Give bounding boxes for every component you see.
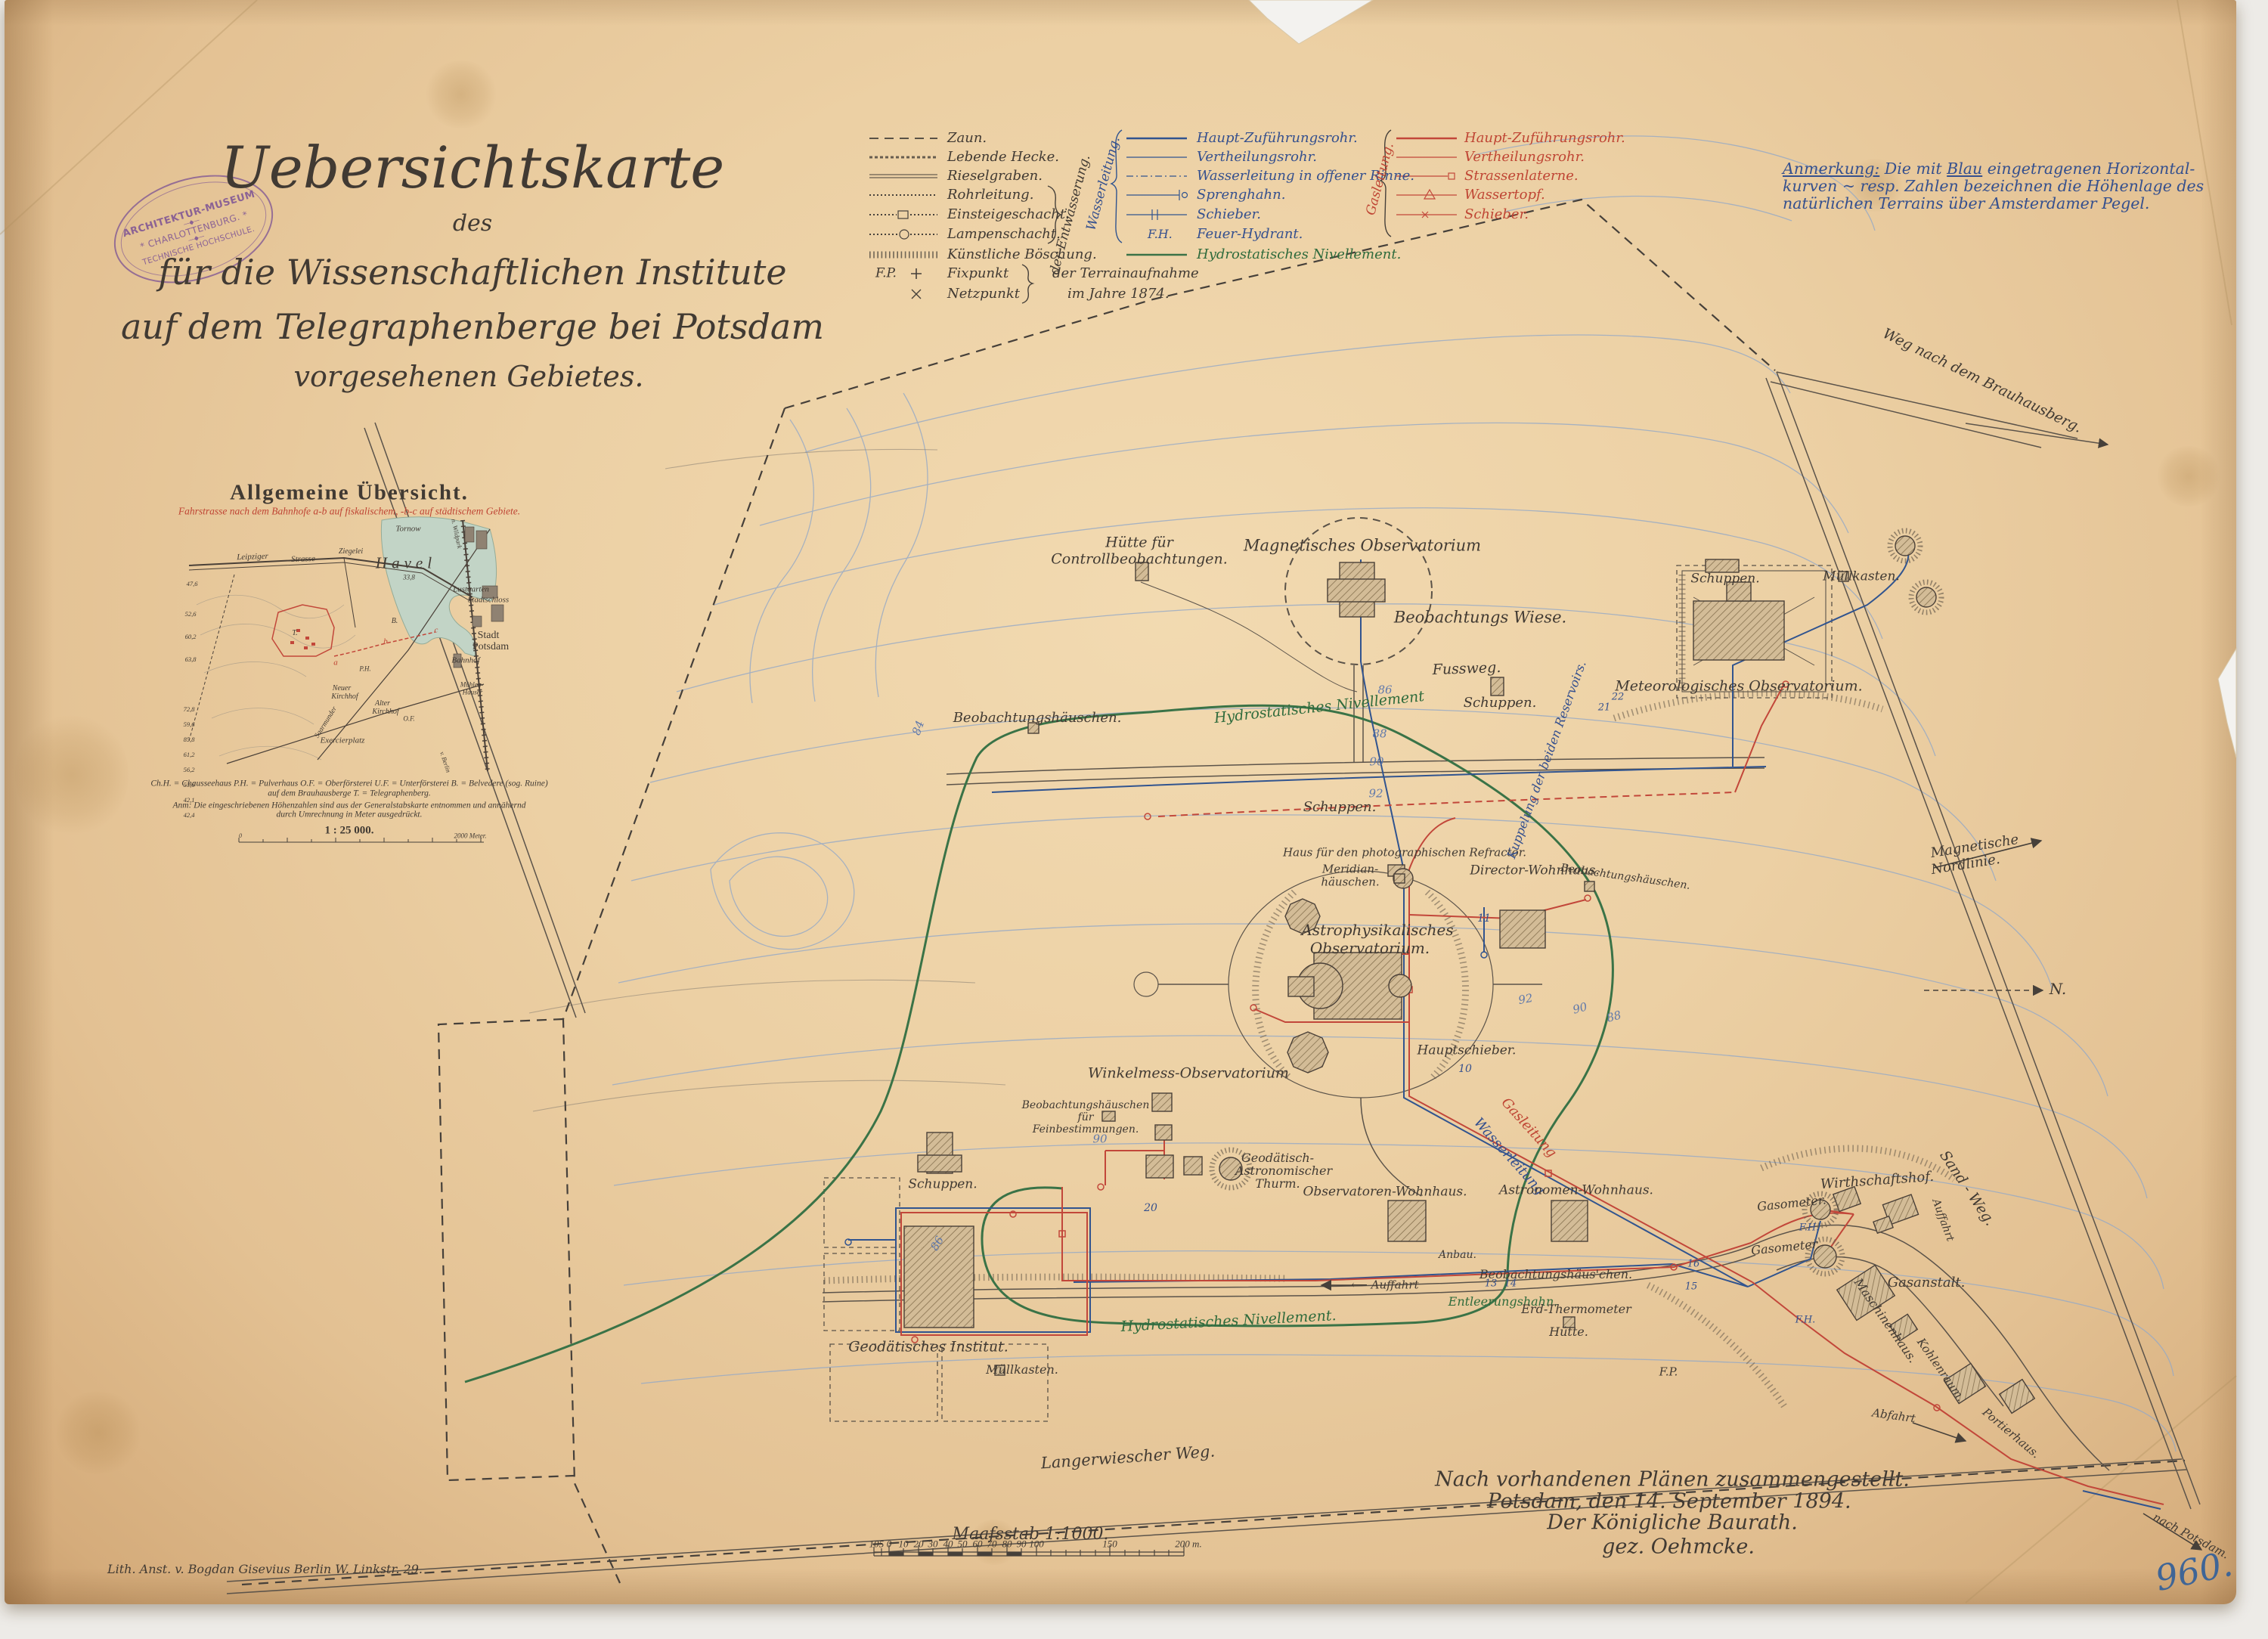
- map-label: Erd-Thermometer: [1521, 1303, 1631, 1315]
- inset-key2: auf dem Brauhausberge T. = Telegraphenbe…: [268, 789, 431, 798]
- legend-label: F.H.: [1148, 228, 1173, 240]
- map-label: F.H.: [1795, 1315, 1816, 1325]
- legend-label: Feuer-Hydrant.: [1197, 228, 1303, 241]
- legend-label: Vertheilungsrohr.: [1197, 150, 1317, 164]
- inset-label: O.F.: [403, 716, 414, 723]
- scale-tick: 150: [1102, 1539, 1117, 1549]
- legend-label: Einsteigeschacht.: [947, 208, 1070, 222]
- map-label: Observatoren-Wohnhaus.: [1303, 1186, 1467, 1199]
- note-text: Die mit: [1879, 160, 1947, 178]
- legend-label: Rohrleitung.: [947, 188, 1033, 202]
- inset-label: 72,8: [184, 706, 195, 713]
- inset-label: Häuser: [463, 689, 483, 696]
- map-label: Winkelmess-Observatorium: [1088, 1067, 1289, 1081]
- map-artwork: [0, 0, 2268, 1639]
- map-label: 21: [1598, 703, 1611, 713]
- map-label: Meteorologisches Observatorium.: [1615, 680, 1862, 694]
- map-title-line3: für die Wissenschaftlichen Institute: [158, 255, 786, 290]
- legend-label: Vertheilungsrohr.: [1464, 150, 1585, 164]
- map-title-des: des: [453, 212, 492, 235]
- map-label: Hauptschieber.: [1417, 1045, 1517, 1058]
- legend-label: Sprenghahn.: [1197, 188, 1285, 202]
- map-label: häuschen.: [1321, 877, 1379, 888]
- inset-label: Alter: [375, 700, 390, 708]
- note-blau: Blau: [1947, 160, 1982, 178]
- inset-label: Exercierplatz: [321, 737, 365, 745]
- map-label: 15: [1685, 1282, 1698, 1292]
- inset-label: 33,8: [403, 575, 415, 581]
- map-label: Meridian-: [1322, 864, 1378, 875]
- map-label: N.: [2050, 981, 2067, 996]
- scale-tick: 200 m.: [1175, 1539, 1201, 1549]
- inset-label: 59,6: [184, 721, 195, 728]
- map-label: 20: [1144, 1203, 1157, 1213]
- site-boundary-fence: [242, 200, 2185, 1585]
- map-label: Geodätisch-: [1241, 1152, 1314, 1164]
- inset-label: T.: [292, 630, 297, 637]
- inset-label: 63,8: [185, 656, 197, 663]
- inset-label: Potsdam: [472, 642, 509, 652]
- colophon-line3: Der Königliche Baurath.: [1547, 1513, 1798, 1533]
- inset-label: 56,2: [184, 767, 195, 773]
- legend-label: Lampenschacht.: [947, 228, 1061, 241]
- map-label: Hütte für: [1105, 536, 1173, 550]
- map-label: 16: [1687, 1259, 1700, 1269]
- inset-scale: 1 : 25 000.: [325, 826, 374, 837]
- inset-label: b: [383, 638, 388, 646]
- scale-tick: 10: [869, 1539, 879, 1549]
- map-label: 10: [1458, 1064, 1472, 1074]
- map-label: Thurm.: [1255, 1178, 1300, 1190]
- map-label: Beobachtungs Wiese.: [1394, 610, 1566, 626]
- scale-tick: 70: [987, 1539, 997, 1549]
- inset-title: Allgemeine Übersicht.: [230, 482, 469, 504]
- legend-label: F.P.: [875, 268, 897, 280]
- scale-tick: 20: [914, 1539, 924, 1549]
- inset-label: 53,6: [184, 782, 195, 789]
- colophon-line1: Nach vorhandenen Plänen zusammengestellt…: [1435, 1470, 1910, 1490]
- inset-label: Tornow: [395, 525, 420, 534]
- map-label: ⟵ Auffahrt: [1351, 1280, 1418, 1291]
- map-label: Haus für den photographischen Refractor.: [1283, 847, 1526, 859]
- inset-label: Havel: [376, 556, 436, 572]
- inset-label: 85,8: [184, 736, 195, 743]
- map-title: Uebersichtskarte: [221, 139, 725, 197]
- inset-label: 47,6: [187, 581, 198, 587]
- map-label: Müllkasten.: [1823, 571, 1900, 584]
- map-label: Schuppen.: [1690, 573, 1759, 586]
- inset-label: a: [333, 659, 338, 668]
- note-label: Anmerkung:: [1783, 160, 1879, 178]
- map-label: Fussweg.: [1432, 661, 1501, 677]
- map-label: Müllkasten.: [986, 1364, 1058, 1376]
- legend-label: Strassenlaterne.: [1464, 169, 1579, 183]
- legend-label: Netzpunkt: [947, 287, 1020, 301]
- note-text: kurven ~ resp. Zahlen bezeichnen die Höh…: [1783, 177, 2204, 195]
- legend-label: Fixpunkt: [947, 267, 1009, 280]
- map-label: F.H.: [1799, 1223, 1820, 1233]
- legend-label: Rieselgraben.: [947, 169, 1043, 183]
- inset-label: Stadtschloss: [468, 596, 509, 605]
- inset-label: 61,2: [184, 751, 195, 758]
- colophon-line2: Potsdam, den 14. September 1894.: [1487, 1492, 1851, 1512]
- inset-label: 0: [239, 833, 242, 839]
- map-label: 22: [1612, 692, 1625, 702]
- note-text: natürlichen Terrains über Amsterdamer Pe…: [1783, 194, 2149, 212]
- legend-label: Künstliche Böschung.: [947, 248, 1097, 262]
- map-label: Gasanstalt.: [1888, 1276, 1966, 1290]
- map-label: 11: [1477, 913, 1491, 924]
- legend-label: Wassertopf.: [1464, 188, 1545, 202]
- map-label: Observatorium.: [1310, 940, 1430, 956]
- legend-label: Haupt-Zuführungsrohr.: [1464, 132, 1625, 145]
- map-label: Magnetisches Observatorium: [1244, 538, 1481, 554]
- map-label: Astronomen-Wohnhaus.: [1499, 1185, 1653, 1197]
- map-label: 88: [1372, 729, 1387, 740]
- map-label: Controllbeobachtungen.: [1051, 553, 1228, 567]
- inset-label: 60,2: [185, 634, 197, 640]
- map-label: 86: [1377, 685, 1392, 696]
- legend-label: Zaun.: [947, 132, 987, 145]
- inset-label: c: [435, 627, 438, 635]
- scale-tick: 90: [1017, 1539, 1027, 1549]
- map-label: Schuppen.: [908, 1179, 977, 1191]
- legend-label: Lebende Hecke.: [947, 150, 1059, 164]
- inset-label: 42,4: [184, 812, 195, 819]
- map-label: 92: [1517, 993, 1533, 1006]
- scale-tick: 50: [958, 1539, 968, 1549]
- map-label: Geodätisches Institut.: [848, 1340, 1008, 1355]
- inset-subtitle: Fahrstrasse nach dem Bahnhofe a-b auf fi…: [178, 506, 520, 516]
- map-label: 90: [1369, 757, 1383, 768]
- map-label: Schuppen.: [1464, 696, 1537, 710]
- scale-tick: 5: [879, 1539, 885, 1549]
- anmerkung-note: Anmerkung: Die mit Blau eingetragenen Ho…: [1783, 160, 2206, 212]
- map-label: Anbau.: [1439, 1250, 1476, 1260]
- scale-tick: 10: [899, 1539, 909, 1549]
- map-label: Astronomischer: [1235, 1165, 1332, 1177]
- map-label: Schuppen.: [1303, 801, 1377, 814]
- inset-label: Leipziger: [237, 553, 268, 562]
- scale-tick: 60: [973, 1539, 983, 1549]
- old-contour-lines: [529, 449, 1005, 1111]
- scale-tick: 0: [887, 1539, 892, 1549]
- inset-label: B.: [392, 618, 398, 625]
- inset-label: Neuer: [333, 685, 351, 692]
- inset-key1: Ch.H. = Chausseehaus P.H. = Pulverhaus O…: [150, 779, 547, 789]
- contour-lines: [612, 136, 2176, 1452]
- map-label: F.P.: [1659, 1367, 1678, 1378]
- legend-label: Schieber.: [1197, 208, 1261, 222]
- map-label: Hütte.: [1549, 1326, 1588, 1338]
- inset-label: Bahnhof: [451, 657, 479, 665]
- scale-tick: 40: [943, 1539, 953, 1549]
- map-label: 14: [1504, 1279, 1517, 1289]
- note-text: eingetragenen Horizontal-: [1982, 160, 2195, 178]
- legend-label: im Jahre 1874.: [1067, 287, 1170, 301]
- inset-label: Kirchhof: [331, 693, 358, 701]
- map-title-line5: vorgesehenen Gebietes.: [294, 362, 644, 391]
- map-label: Beobachtungshäuschen: [1022, 1100, 1150, 1111]
- legend-label: Hydrostatisches Nivellement.: [1197, 248, 1401, 262]
- legend-label: Schieber.: [1464, 208, 1529, 222]
- inset-label: 42,1: [184, 797, 195, 804]
- inset-label: Stadt: [478, 631, 500, 641]
- scale-tick: 30: [928, 1539, 938, 1549]
- legend-label: Haupt-Zuführungsrohr.: [1197, 132, 1358, 145]
- map-label: 90: [1092, 1134, 1107, 1145]
- map-label: für: [1078, 1112, 1094, 1123]
- map-label: Astrophysikalisches: [1301, 922, 1453, 937]
- inset-anm1: Anm: Die eingeschriebenen Höhenzahlen si…: [173, 801, 526, 810]
- scan-backing: { "archive_number": "960.", "printer_cre…: [0, 0, 2268, 1639]
- inset-label: Mühlen-: [460, 682, 484, 689]
- map-label: 13: [1485, 1279, 1498, 1289]
- legend-label: der Terrainaufnahme: [1052, 267, 1199, 280]
- printer-credit: Lith. Anst. v. Bogdan Gisevius Berlin W.…: [107, 1563, 423, 1575]
- inset-label: Kirchhof: [372, 708, 398, 716]
- inset-label: Lustgarten: [453, 586, 489, 594]
- map-label: 92: [1368, 789, 1383, 800]
- inset-label: P.H.: [359, 666, 370, 673]
- inset-label: Ziegelei: [339, 548, 363, 556]
- inset-label: Strasse: [291, 555, 315, 564]
- map-label: Beobachtungshäus'chen.: [1479, 1269, 1632, 1281]
- map-title-line4: auf dem Telegraphenberge bei Potsdam: [121, 309, 824, 344]
- inset-label: 2000 Meter.: [454, 833, 487, 840]
- scale-tick: 100: [1029, 1539, 1044, 1549]
- colophon-signature: gez. Oehmcke.: [1602, 1537, 1755, 1557]
- scale-tick: 80: [1002, 1539, 1012, 1549]
- inset-label: 52,6: [185, 611, 197, 618]
- map-label: Beobachtungshäuschen.: [953, 711, 1122, 725]
- map-label: Feinbestimmungen.: [1033, 1124, 1139, 1135]
- inset-anm2: durch Umrechnung in Meter ausgedrückt.: [276, 810, 422, 819]
